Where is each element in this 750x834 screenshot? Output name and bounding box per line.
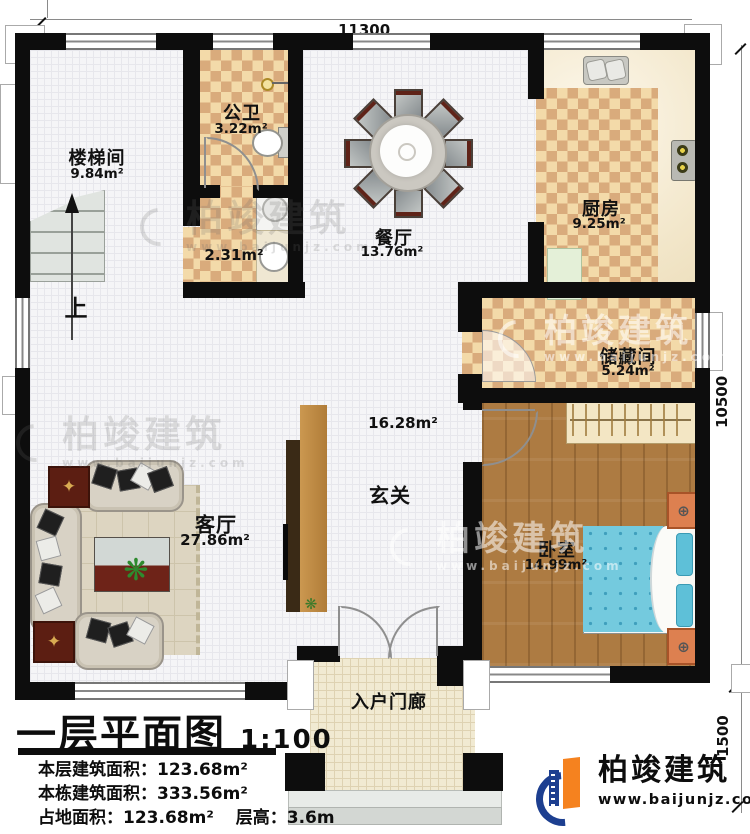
dining-chair <box>394 189 423 218</box>
porch-pilaster <box>463 660 490 710</box>
room-label-porch: 入户门廊 <box>351 688 427 714</box>
window <box>75 682 245 700</box>
room-area-living: 27.86m² <box>180 531 250 549</box>
tv-cabinet <box>286 440 300 612</box>
dimension-right-lower: 1500 <box>714 719 732 757</box>
plant-icon: ❋ <box>301 594 321 614</box>
wall <box>273 33 353 50</box>
stat-label: 占地面积： <box>38 808 123 828</box>
room-area-bedroom: 14.99m² <box>525 557 588 573</box>
stairs-up-label: 上 <box>65 289 88 323</box>
wall <box>183 33 200 226</box>
leader-box <box>731 664 750 693</box>
stove-burner-icon <box>677 145 688 156</box>
top-dimension-line <box>30 19 692 20</box>
wall <box>528 33 544 99</box>
tv-screen <box>283 524 288 580</box>
wall <box>463 390 482 410</box>
stove-burner-icon <box>677 162 688 173</box>
stat-label: 本层建筑面积： <box>38 760 157 780</box>
wall <box>430 33 540 50</box>
window <box>213 33 273 50</box>
brand-website: www.baijunjz.com <box>598 793 750 808</box>
stat-label: 层高： <box>236 808 287 828</box>
storage-door-pass <box>462 332 482 378</box>
floor-plan-sheet: 11300 10500 1500 上 <box>0 0 750 834</box>
stat-value: 333.56m² <box>157 784 248 804</box>
room-label-foyer: 玄关 <box>369 480 411 509</box>
stat-value: 123.68m² <box>157 760 248 780</box>
end-table: ✦ <box>48 466 90 508</box>
window <box>490 666 610 683</box>
laundry-floor-ext <box>183 227 200 282</box>
dining-chair <box>444 139 473 168</box>
wall <box>695 368 710 683</box>
room-area-bathroom: 3.22m² <box>214 121 267 137</box>
right-dimension-line <box>741 45 742 813</box>
room-area-laundry: 2.31m² <box>204 246 263 264</box>
dimension-right: 10500 <box>713 384 731 428</box>
brand-logo-icon <box>536 756 588 818</box>
brand-name: 柏竣建筑 <box>598 756 750 786</box>
end-table: ✦ <box>33 621 75 663</box>
wall <box>15 682 75 700</box>
logo-building-orange-icon <box>563 757 580 809</box>
wall <box>463 462 482 662</box>
window <box>15 298 30 368</box>
stat-line-2: 本栋建筑面积：333.56m² <box>38 782 335 806</box>
wall <box>695 33 710 313</box>
bed-pillow <box>676 584 693 627</box>
wall <box>610 666 710 683</box>
dining-table-center <box>398 143 416 161</box>
brand-logo: 柏竣建筑 www.baijunjz.com <box>536 756 750 818</box>
sofa-pillow <box>38 562 62 586</box>
room-area-foyer: 16.28m² <box>368 414 438 432</box>
wall-lamp-icon <box>261 78 274 91</box>
stats-block: 本层建筑面积：123.68m² 本栋建筑面积：333.56m² 占地面积：123… <box>38 758 335 830</box>
washing-machine-drum <box>262 196 288 222</box>
bed-pillow <box>676 533 693 576</box>
window <box>540 33 640 50</box>
kitchen-sink-basin <box>585 58 608 82</box>
title-underline <box>18 748 276 755</box>
wall <box>183 282 305 298</box>
wall <box>458 282 482 332</box>
window <box>695 313 710 368</box>
wall-lamp-stem <box>272 82 289 84</box>
logo-building-blue-icon <box>549 770 559 806</box>
window <box>66 33 156 50</box>
room-area-storage: 5.24m² <box>601 363 654 379</box>
wall <box>15 368 30 700</box>
stat-value: 123.68m² <box>123 808 214 828</box>
window <box>353 33 430 50</box>
bed-sheet-fold <box>650 526 678 632</box>
stat-label: 本栋建筑面积： <box>38 784 157 804</box>
stat-line-1: 本层建筑面积：123.68m² <box>38 758 335 782</box>
stat-line-3: 占地面积：123.68m²层高：3.6m <box>38 806 335 830</box>
stair-arrow-icon <box>65 193 79 213</box>
room-area-stairwell: 9.84m² <box>70 166 123 182</box>
porch-column <box>463 753 503 791</box>
room-area-dining: 13.76m² <box>361 244 424 260</box>
kitchen-sink-basin <box>604 58 627 82</box>
stat-value: 3.6m <box>287 808 335 828</box>
plant-icon: ❋ <box>116 551 156 591</box>
wall <box>458 282 695 298</box>
room-area-kitchen: 9.25m² <box>572 216 625 232</box>
dim-extension <box>47 0 48 18</box>
wardrobe-hangers <box>572 404 689 436</box>
wall <box>458 388 710 403</box>
wall <box>288 50 303 282</box>
tv-feature-wall <box>300 405 327 612</box>
wall <box>15 33 30 298</box>
